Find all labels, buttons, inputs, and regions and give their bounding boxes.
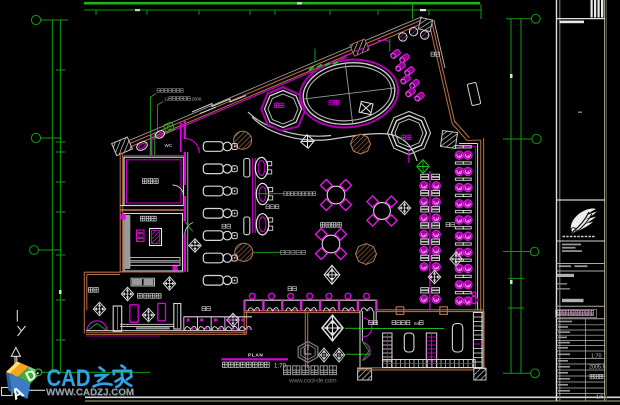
svg-text:84: 84 bbox=[414, 321, 420, 327]
svg-text:1:70: 1:70 bbox=[591, 354, 602, 360]
svg-text:2005.6: 2005.6 bbox=[589, 365, 606, 371]
svg-text:2000: 2000 bbox=[192, 97, 202, 102]
svg-text:www.cool-de.com: www.cool-de.com bbox=[288, 378, 337, 385]
svg-text:WC: WC bbox=[165, 143, 173, 148]
svg-text:WWW.CADZJ.COM: WWW.CADZJ.COM bbox=[46, 386, 134, 397]
svg-text:12: 12 bbox=[164, 97, 169, 102]
svg-text:PLAN: PLAN bbox=[248, 353, 263, 359]
svg-text:1/6: 1/6 bbox=[596, 395, 604, 401]
